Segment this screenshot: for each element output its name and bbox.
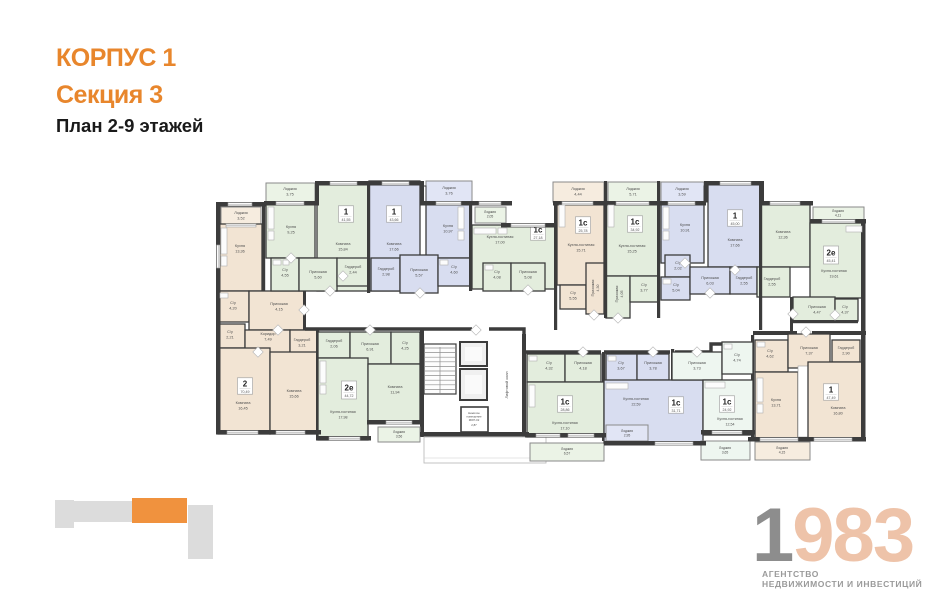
svg-text:Кухня13,71: Кухня13,71 bbox=[771, 398, 781, 408]
svg-text:31,71: 31,71 bbox=[672, 409, 681, 413]
svg-text:С/у4,20: С/у4,20 bbox=[229, 301, 236, 311]
svg-text:1: 1 bbox=[392, 208, 397, 217]
svg-text:43,66: 43,66 bbox=[390, 218, 399, 222]
svg-text:С/у4,74: С/у4,74 bbox=[733, 353, 740, 363]
svg-text:34,92: 34,92 bbox=[631, 228, 640, 232]
svg-text:Кухня10,91: Кухня10,91 bbox=[680, 223, 690, 233]
svg-text:27,18: 27,18 bbox=[534, 236, 543, 240]
svg-text:1с: 1с bbox=[561, 398, 570, 407]
svg-text:1с: 1с bbox=[631, 218, 640, 227]
svg-text:1с: 1с bbox=[723, 398, 732, 407]
svg-text:С/у3,67: С/у3,67 bbox=[617, 361, 624, 371]
svg-text:2: 2 bbox=[243, 380, 248, 389]
svg-text:45,41: 45,41 bbox=[827, 259, 836, 263]
svg-text:41,55: 41,55 bbox=[342, 218, 351, 222]
svg-text:Кухня13,36: Кухня13,36 bbox=[235, 244, 245, 254]
svg-text:1: 1 bbox=[829, 386, 834, 395]
svg-text:2е: 2е bbox=[345, 384, 354, 393]
svg-text:С/у4,08: С/у4,08 bbox=[493, 270, 500, 280]
svg-text:70,49: 70,49 bbox=[241, 390, 250, 394]
svg-text:С/у4,62: С/у4,62 bbox=[766, 349, 773, 359]
svg-text:С/у4,37: С/у4,37 bbox=[841, 305, 848, 315]
svg-text:2,87: 2,87 bbox=[471, 423, 477, 427]
svg-text:24,92: 24,92 bbox=[723, 408, 732, 412]
svg-text:С/у2,21: С/у2,21 bbox=[226, 330, 233, 340]
svg-text:МОП-02: МОП-02 bbox=[469, 418, 480, 422]
svg-text:1с: 1с bbox=[579, 219, 588, 228]
svg-text:1: 1 bbox=[344, 208, 349, 217]
svg-text:С/у5,04: С/у5,04 bbox=[672, 283, 679, 293]
svg-text:Кухня10,97: Кухня10,97 bbox=[443, 224, 453, 234]
svg-text:28,86: 28,86 bbox=[561, 408, 570, 412]
svg-text:С/у5,55: С/у5,55 bbox=[569, 291, 576, 301]
svg-text:25,78: 25,78 bbox=[579, 229, 588, 233]
svg-text:С/у4,32: С/у4,32 bbox=[545, 361, 552, 371]
svg-text:1с: 1с bbox=[672, 399, 681, 408]
svg-text:Лифтовой холл: Лифтовой холл bbox=[505, 371, 509, 398]
svg-text:47,49: 47,49 bbox=[827, 396, 836, 400]
svg-text:С/у3,77: С/у3,77 bbox=[640, 283, 647, 293]
svg-text:С/у4,55: С/у4,55 bbox=[281, 268, 288, 278]
svg-text:2е: 2е bbox=[827, 249, 836, 258]
svg-text:45,00: 45,00 bbox=[731, 222, 740, 226]
svg-text:44,72: 44,72 bbox=[345, 394, 354, 398]
svg-text:Кухня9,25: Кухня9,25 bbox=[286, 225, 296, 235]
svg-text:1: 1 bbox=[733, 212, 738, 221]
svg-text:С/у4,60: С/у4,60 bbox=[450, 265, 457, 275]
svg-text:С/у4,25: С/у4,25 bbox=[401, 341, 408, 351]
